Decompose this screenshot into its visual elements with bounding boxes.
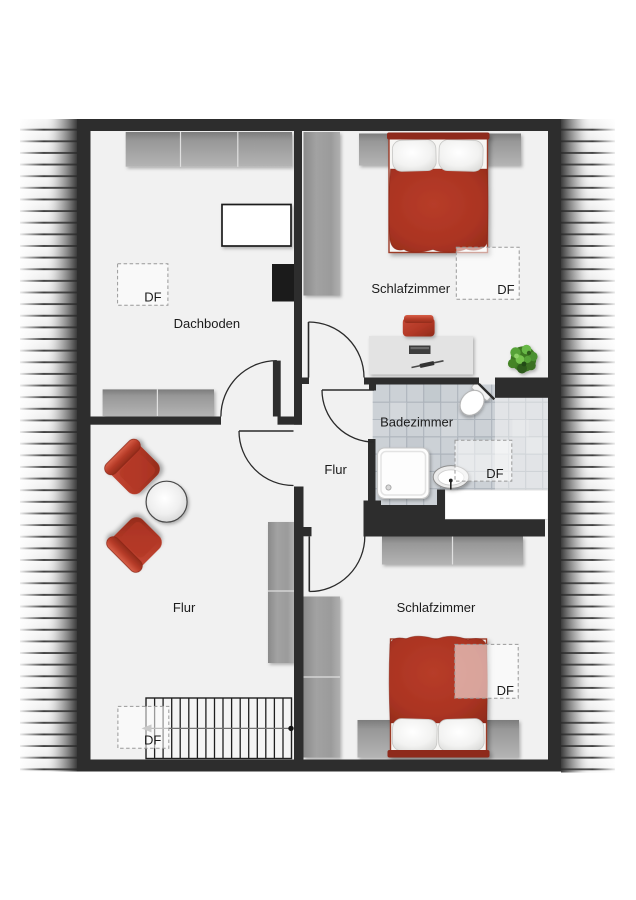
svg-text:DF: DF xyxy=(486,466,503,481)
svg-text:DF: DF xyxy=(497,683,514,698)
svg-text:DF: DF xyxy=(144,289,161,304)
svg-text:Flur: Flur xyxy=(173,600,196,615)
svg-text:Dachboden: Dachboden xyxy=(174,316,241,331)
svg-text:Badezimmer: Badezimmer xyxy=(380,414,454,429)
svg-text:Flur: Flur xyxy=(324,462,347,477)
svg-text:DF: DF xyxy=(144,732,161,747)
svg-text:Schlafzimmer: Schlafzimmer xyxy=(371,281,450,296)
svg-text:DF: DF xyxy=(497,282,514,297)
svg-text:Schlafzimmer: Schlafzimmer xyxy=(397,600,476,615)
